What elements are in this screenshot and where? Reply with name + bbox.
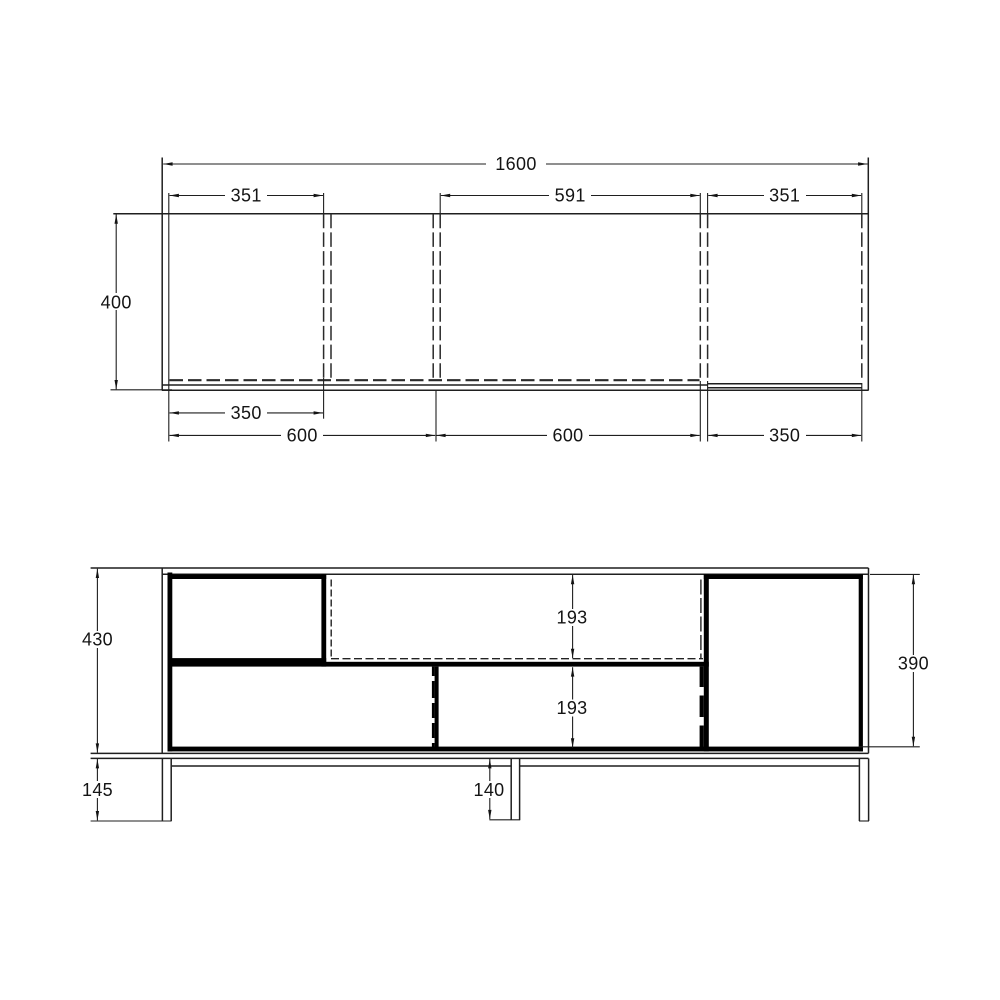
svg-text:600: 600 bbox=[287, 425, 318, 445]
svg-text:351: 351 bbox=[769, 186, 800, 206]
svg-text:140: 140 bbox=[473, 780, 504, 800]
svg-text:193: 193 bbox=[556, 698, 587, 718]
svg-text:350: 350 bbox=[769, 425, 800, 445]
svg-text:591: 591 bbox=[555, 186, 586, 206]
svg-text:350: 350 bbox=[231, 403, 262, 423]
svg-text:390: 390 bbox=[898, 654, 929, 674]
svg-text:351: 351 bbox=[231, 186, 262, 206]
svg-text:193: 193 bbox=[556, 608, 587, 628]
svg-text:600: 600 bbox=[552, 425, 583, 445]
svg-text:1600: 1600 bbox=[495, 154, 536, 174]
svg-text:400: 400 bbox=[101, 292, 132, 312]
svg-text:430: 430 bbox=[82, 630, 113, 650]
svg-text:145: 145 bbox=[82, 780, 113, 800]
